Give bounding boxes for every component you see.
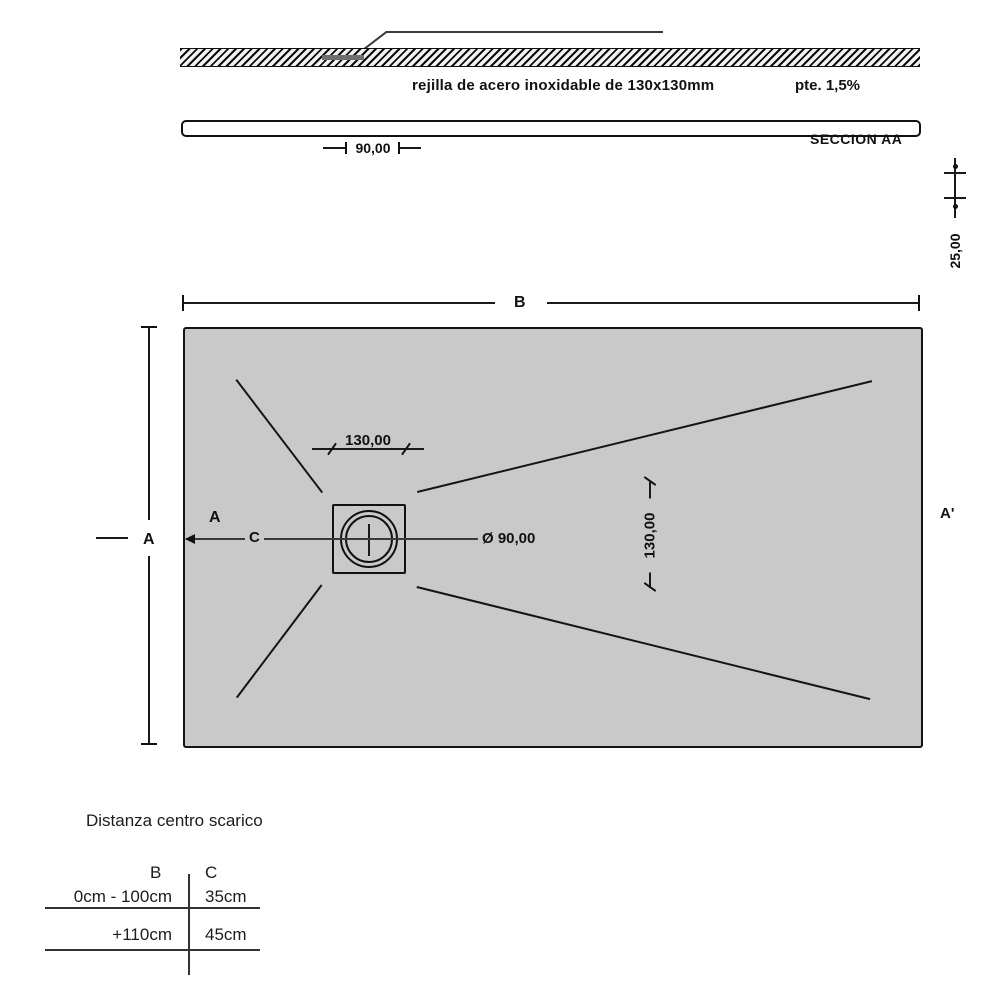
dimB-line-right bbox=[547, 302, 920, 304]
section-drain-body bbox=[322, 55, 364, 60]
technical-drawing-shower-tray: rejilla de acero inoxidable de 130x130mm… bbox=[0, 0, 1000, 1000]
dimA-cap-top bbox=[141, 326, 157, 328]
table-row2-c: 45cm bbox=[205, 926, 247, 943]
section-start-label: A bbox=[209, 510, 221, 526]
grate-width-dim: 90,00 bbox=[348, 141, 398, 155]
leader-line-horizontal bbox=[386, 31, 663, 33]
width-dim-label: B bbox=[514, 295, 526, 311]
section-name-label: SECCION AA bbox=[810, 132, 902, 146]
drain-centerline bbox=[368, 524, 370, 556]
section-arrow bbox=[185, 534, 195, 544]
table-row1-c: 35cm bbox=[205, 888, 247, 905]
drain-offset-label: C bbox=[245, 530, 264, 545]
dim25-tick-top bbox=[944, 172, 966, 174]
dim90-right-line bbox=[399, 147, 421, 149]
dimB-line-left bbox=[183, 302, 495, 304]
table-rule-1 bbox=[45, 907, 260, 909]
table-row2-b: +110cm bbox=[40, 926, 172, 943]
drain-width-dim: 130,00 bbox=[330, 433, 406, 448]
dimB-end-left bbox=[182, 295, 184, 311]
table-row1-b: 0cm - 100cm bbox=[40, 888, 172, 905]
dim25-dot-top bbox=[953, 164, 958, 169]
section-line bbox=[186, 538, 478, 540]
drain-height-dim: 130,00 bbox=[643, 499, 658, 573]
section-hatched-slab bbox=[180, 48, 920, 67]
dimA-line-bottom bbox=[148, 556, 150, 745]
table-divider bbox=[188, 874, 190, 975]
table-title: Distanza centro scarico bbox=[86, 812, 263, 829]
thickness-dim: 25,00 bbox=[948, 221, 962, 281]
grate-label: rejilla de acero inoxidable de 130x130mm bbox=[412, 78, 714, 93]
dimB-end-right bbox=[918, 295, 920, 311]
table-col-c: C bbox=[205, 864, 217, 881]
drain-diameter-dim: Ø 90,00 bbox=[482, 531, 535, 546]
slope-label: pte. 1,5% bbox=[795, 78, 860, 93]
dim90-left-tick bbox=[345, 142, 347, 154]
dim90-right-tick bbox=[398, 142, 400, 154]
dimA-line-top bbox=[148, 327, 150, 520]
section-mark-dash bbox=[96, 537, 128, 539]
dim25-dot-bottom bbox=[953, 204, 958, 209]
dimA-cap-bottom bbox=[141, 743, 157, 745]
section-end-label: A' bbox=[940, 506, 954, 521]
dim90-left-line bbox=[323, 147, 345, 149]
height-dim-label: A bbox=[142, 530, 156, 550]
dim25-tick-bottom bbox=[944, 197, 966, 199]
table-rule-2 bbox=[45, 949, 260, 951]
table-col-b: B bbox=[150, 864, 161, 881]
